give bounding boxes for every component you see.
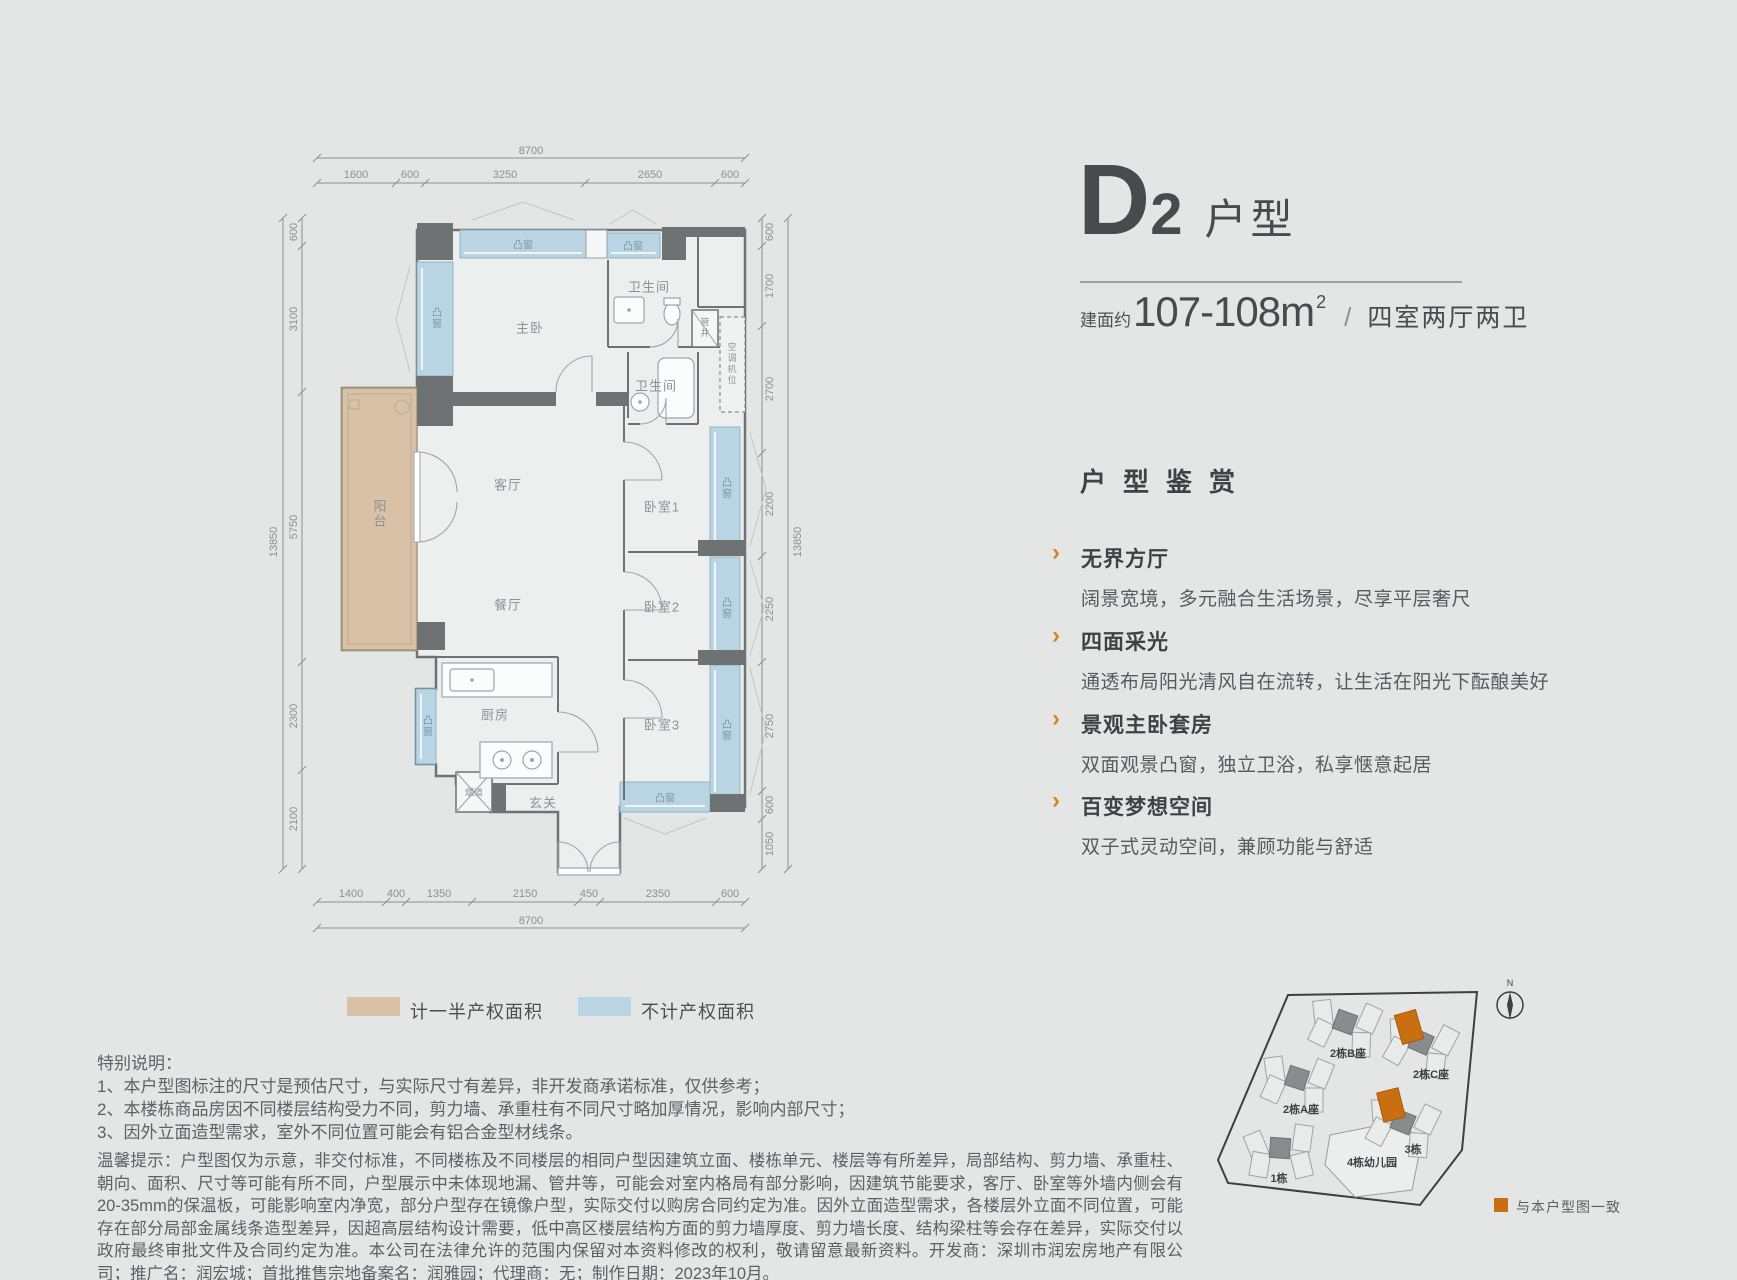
bay-window-label: 凸窗 bbox=[623, 238, 643, 253]
title-divider bbox=[1080, 281, 1462, 283]
room-label-foyer: 玄关 bbox=[529, 793, 557, 812]
dim-label: 600 bbox=[721, 169, 739, 181]
dim-label: 3250 bbox=[493, 169, 517, 181]
dim-label: 600 bbox=[764, 796, 776, 814]
feature-item-4: 百变梦想空间 双子式灵动空间，兼顾功能与舒适 bbox=[1052, 791, 1472, 859]
dim-label: 8700 bbox=[519, 915, 543, 927]
map-legend-label: 与本户型图一致 bbox=[1516, 1197, 1621, 1217]
room-label-shaft: 管井 bbox=[699, 317, 712, 339]
feature-desc: 通透布局阳光清风自在流转，让生活在阳光下酝酿美好 bbox=[1081, 667, 1472, 694]
warm-tips-paragraph: 温馨提示：户型图仅为示意，非交付标准，不同楼栋及不同楼层的相同户型因建筑立面、楼… bbox=[97, 1150, 1183, 1280]
dim-label: 600 bbox=[721, 888, 739, 900]
unit-type-title: D 2 户型 bbox=[1078, 150, 1297, 250]
feature-title: 无界方厅 bbox=[1081, 543, 1472, 573]
dim-label: 400 bbox=[387, 888, 405, 900]
dim-label: 2100 bbox=[288, 807, 300, 831]
room-label-ac: 空调机位 bbox=[726, 342, 739, 386]
floorplan: 8700 1600 600 3250 2650 600 1400 400 135… bbox=[210, 112, 820, 1022]
dim-label: 1600 bbox=[344, 169, 368, 181]
feature-desc: 阔景宽境，多元融合生活场景，尽享平层奢尺 bbox=[1081, 584, 1472, 611]
dim-label: 1700 bbox=[764, 274, 776, 298]
dim-label: 3100 bbox=[288, 307, 300, 331]
compass-north-label: N bbox=[1507, 978, 1514, 988]
room-label-living: 客厅 bbox=[494, 475, 522, 494]
dim-label: 2700 bbox=[764, 377, 776, 401]
room-label-dining: 餐厅 bbox=[494, 595, 522, 614]
special-notes: 特别说明： 1、本户型图标注的尺寸是预估尺寸，与实际尺寸有差异，非开发商承诺标准… bbox=[97, 1052, 1107, 1144]
chevron-right-icon bbox=[1052, 792, 1060, 813]
bay-window-label: 凸窗 bbox=[513, 237, 533, 252]
room-label-flue: 烟道 bbox=[465, 786, 483, 799]
site-map: 2栋B座 2栋C座 2栋A座 3栋 1栋 4栋幼儿园 N 与本户型图一致 bbox=[1150, 950, 1630, 1240]
dim-label: 5750 bbox=[288, 515, 300, 539]
map-legend-swatch bbox=[1494, 1198, 1508, 1212]
building-label-kindergarten: 4栋幼儿园 bbox=[1347, 1154, 1397, 1170]
room-label-bed2: 卧室2 bbox=[644, 597, 680, 616]
dim-label: 13850 bbox=[268, 527, 280, 558]
dim-label: 450 bbox=[580, 888, 598, 900]
building-label-1: 1栋 bbox=[1270, 1170, 1287, 1186]
dim-label: 2350 bbox=[646, 888, 670, 900]
dim-label: 1050 bbox=[764, 832, 776, 856]
dim-label: 2150 bbox=[513, 888, 537, 900]
area-value: 107-108m bbox=[1133, 288, 1314, 336]
dim-label: 2750 bbox=[764, 714, 776, 738]
feature-item-1: 无界方厅 阔景宽境，多元融合生活场景，尽享平层奢尺 bbox=[1052, 543, 1472, 611]
building-label-2c: 2栋C座 bbox=[1413, 1066, 1449, 1082]
unit-type-suffix: 户型 bbox=[1204, 186, 1296, 247]
dim-label: 1400 bbox=[339, 888, 363, 900]
unit-type-number: 2 bbox=[1150, 186, 1182, 244]
bay-window-label: 凸窗 bbox=[718, 597, 733, 619]
dim-label: 600 bbox=[401, 169, 419, 181]
legend-label-half-property: 计一半产权面积 bbox=[410, 998, 543, 1024]
room-label-kitchen: 厨房 bbox=[481, 705, 509, 724]
dim-label: 2650 bbox=[638, 169, 662, 181]
feature-title: 百变梦想空间 bbox=[1081, 791, 1472, 821]
bay-window-label: 凸窗 bbox=[419, 715, 434, 737]
feature-title: 四面采光 bbox=[1081, 626, 1472, 656]
feature-item-2: 四面采光 通透布局阳光清风自在流转，让生活在阳光下酝酿美好 bbox=[1052, 626, 1472, 694]
bay-window-label: 凸窗 bbox=[718, 719, 733, 741]
dim-label: 1350 bbox=[427, 888, 451, 900]
chevron-right-icon bbox=[1052, 627, 1060, 648]
special-notes-item: 1、本户型图标注的尺寸是预估尺寸，与实际尺寸有差异，非开发商承诺标准，仅供参考； bbox=[97, 1075, 1107, 1098]
dim-label: 13850 bbox=[792, 527, 804, 558]
legend-swatch-no-property bbox=[578, 997, 631, 1016]
chevron-right-icon bbox=[1052, 544, 1060, 565]
bay-window-label: 凸窗 bbox=[718, 477, 733, 499]
legend-label-no-property: 不计产权面积 bbox=[641, 998, 755, 1024]
bay-window-label: 凸窗 bbox=[428, 307, 443, 329]
dim-label: 2250 bbox=[764, 597, 776, 621]
special-notes-item: 2、本楼栋商品房因不同楼层结构受力不同，剪力墙、承重柱有不同尺寸略加厚情况，影响… bbox=[97, 1098, 1107, 1121]
room-label-bed1: 卧室1 bbox=[644, 497, 680, 516]
bay-window-label: 凸窗 bbox=[655, 790, 675, 805]
building-label-2a: 2栋A座 bbox=[1283, 1101, 1319, 1117]
area-info: 建面约 107-108m 2 / 四室两厅两卫 bbox=[1080, 288, 1529, 336]
room-label-bath2: 卫生间 bbox=[635, 376, 677, 395]
building-label-2b: 2栋B座 bbox=[1330, 1045, 1366, 1061]
dim-label: 600 bbox=[288, 223, 300, 241]
room-label-balcony: 阳台 bbox=[370, 499, 389, 529]
page-canvas: 8700 1600 600 3250 2650 600 1400 400 135… bbox=[0, 0, 1737, 1280]
slash-divider: / bbox=[1344, 302, 1351, 333]
rooms-description: 四室两厅两卫 bbox=[1367, 298, 1529, 334]
dim-label: 8700 bbox=[519, 145, 543, 157]
area-superscript: 2 bbox=[1316, 292, 1326, 313]
area-prefix: 建面约 bbox=[1080, 306, 1131, 331]
legend-swatch-half-property bbox=[347, 997, 400, 1016]
feature-title: 景观主卧套房 bbox=[1081, 709, 1472, 739]
feature-desc: 双面观景凸窗，独立卫浴，私享惬意起居 bbox=[1081, 750, 1472, 777]
dim-label: 600 bbox=[764, 223, 776, 241]
chevron-right-icon bbox=[1052, 710, 1060, 731]
appreciation-heading: 户型鉴赏 bbox=[1080, 462, 1252, 499]
feature-desc: 双子式灵动空间，兼顾功能与舒适 bbox=[1081, 832, 1472, 859]
dim-label: 2300 bbox=[288, 704, 300, 728]
feature-item-3: 景观主卧套房 双面观景凸窗，独立卫浴，私享惬意起居 bbox=[1052, 709, 1472, 777]
room-label-bath1: 卫生间 bbox=[628, 277, 670, 296]
room-label-bed3: 卧室3 bbox=[644, 715, 680, 734]
unit-type-letter: D bbox=[1078, 150, 1148, 250]
special-notes-item: 3、因外立面造型需求，室外不同位置可能会有铝合金型材线条。 bbox=[97, 1121, 1107, 1144]
special-notes-title: 特别说明： bbox=[97, 1052, 1107, 1075]
building-label-3: 3栋 bbox=[1404, 1141, 1421, 1157]
room-label-master: 主卧 bbox=[516, 318, 544, 337]
dim-label: 2200 bbox=[764, 492, 776, 516]
